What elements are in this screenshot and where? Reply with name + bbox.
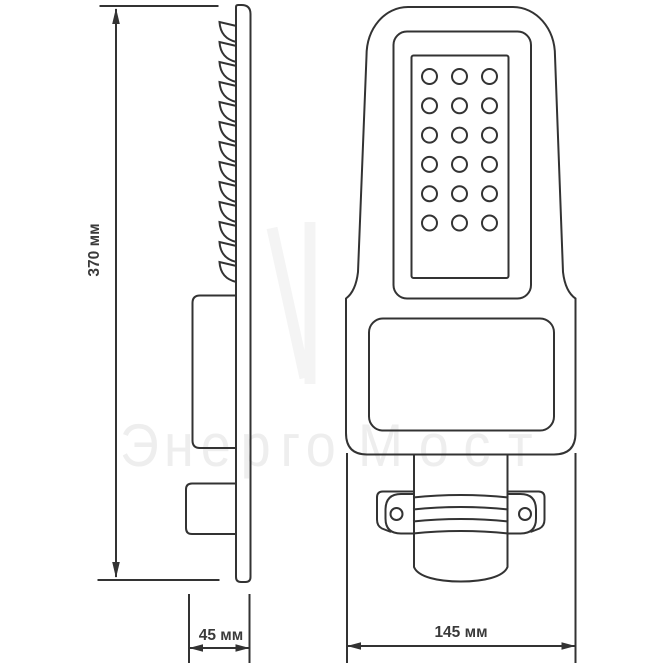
svg-text:45 мм: 45 мм — [199, 627, 243, 644]
svg-text:370 мм: 370 мм — [86, 223, 103, 276]
svg-text:ЭнергоМост: ЭнергоМост — [120, 412, 533, 479]
svg-text:145 мм: 145 мм — [434, 624, 487, 641]
